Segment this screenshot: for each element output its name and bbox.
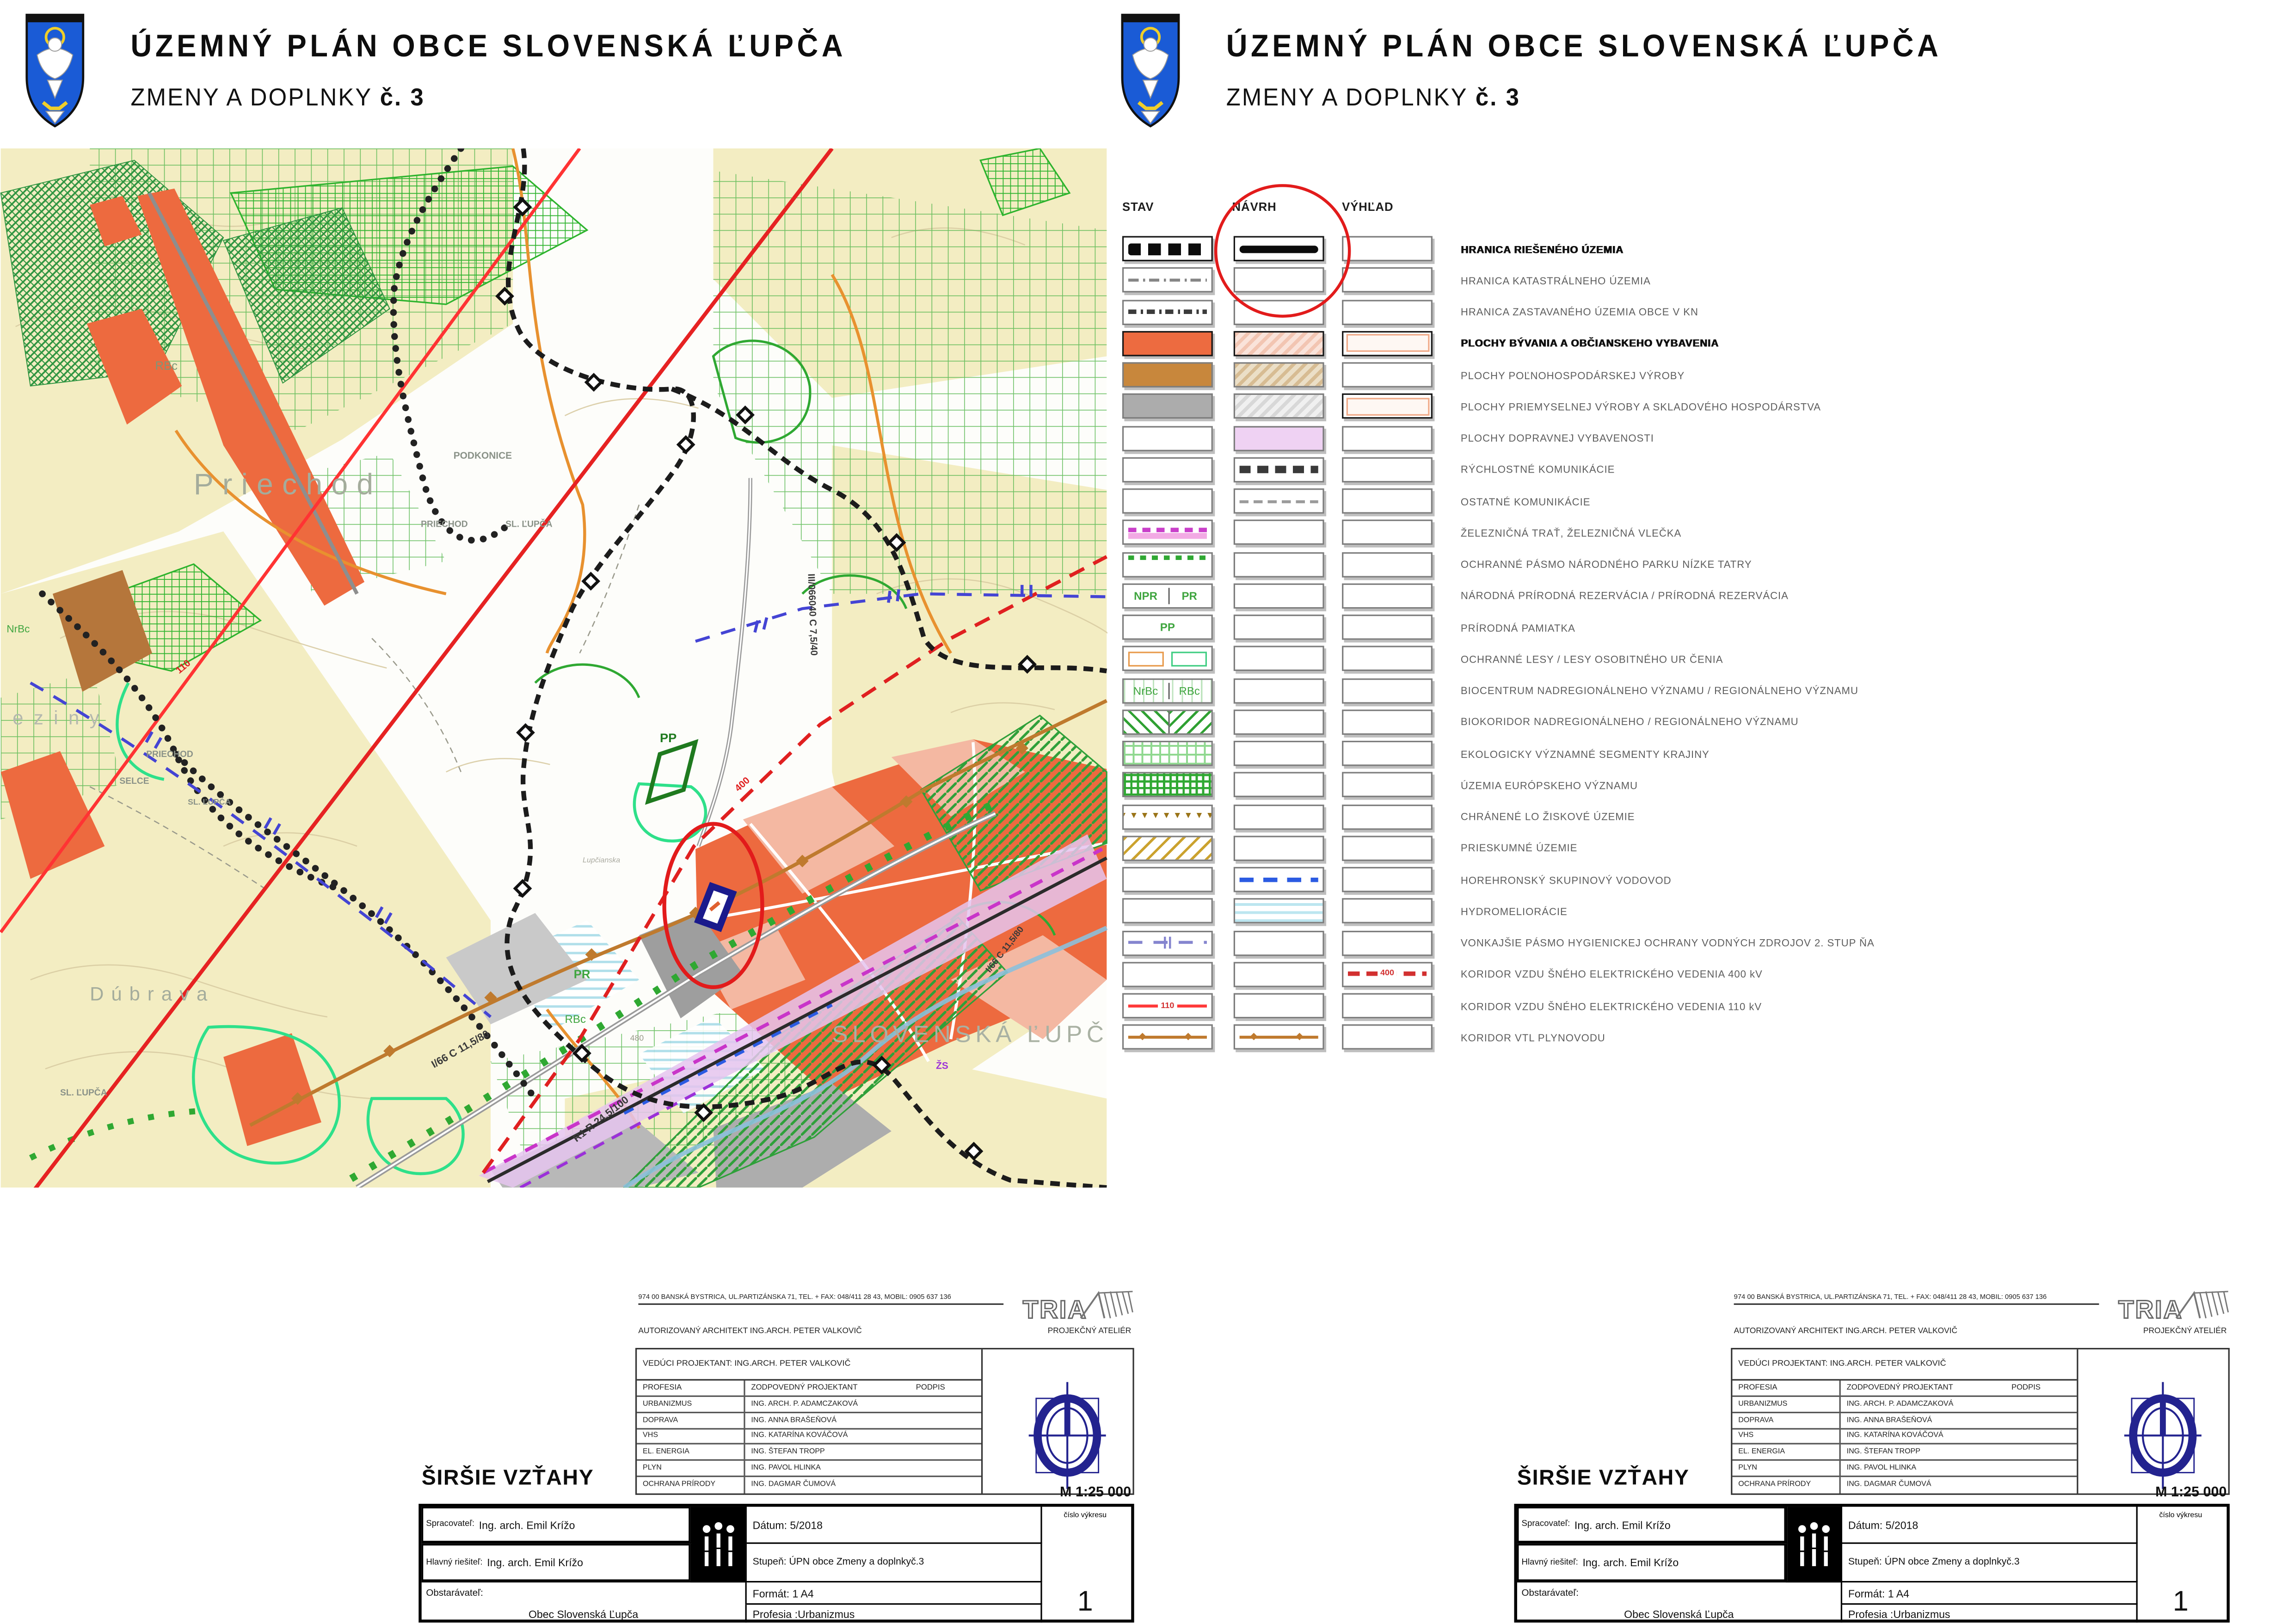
drawing-number-label: číslo výkresu — [2138, 1507, 2224, 1582]
legend-swatch-vyhlad — [1342, 425, 1433, 451]
legend-swatch-vyhlad — [1342, 268, 1433, 293]
legend-swatch-stav: PP — [1122, 615, 1213, 640]
legend-swatch-stav: ◆ ◆ — [1122, 1025, 1213, 1050]
legend-swatch-stav — [1122, 299, 1213, 325]
legend-swatch-vyhlad — [1342, 867, 1433, 892]
legend-row: 400KORIDOR VZDU ŠNÉHO ELEKTRICKÉHO VEDEN… — [1122, 960, 2294, 991]
legend-label: ŽELEZNIČNÁ TRAŤ, ŽELEZNIČNÁ VLEČKA — [1461, 529, 1681, 539]
info-table: Spracovateľ:Ing. arch. Emil Krížo Dátum:… — [418, 1504, 1134, 1623]
studio-address: 974 00 BANSKÁ BYSTRICA, UL.PARTIZÁNSKA 7… — [638, 1293, 1003, 1305]
svg-text:480: 480 — [630, 1033, 644, 1042]
legend-label: VONKAJŠIE PÁSMO HYGIENICKEJ OCHRANY VODN… — [1461, 939, 1875, 949]
legend-swatch-stav — [1122, 520, 1213, 545]
map-scale: M 1:25 000 — [1060, 1484, 1131, 1501]
legend-label: HOREHRONSKÝ SKUPINOVÝ VODOVOD — [1461, 876, 1672, 886]
legend-swatch-navrh — [1234, 552, 1324, 577]
legend-row: PLOCHY PRIEMYSELNEJ VÝROBY A SKLADOVÉHO … — [1122, 392, 2294, 424]
obec-cell: Obec Slovenská Ľupča — [1517, 1605, 1842, 1623]
legend-swatch-navrh — [1234, 362, 1324, 388]
legend-column-header: VÝHĽAD — [1342, 200, 1393, 214]
svg-text:ŽS: ŽS — [936, 1060, 948, 1071]
legend-label: HYDROMELIORÁCIE — [1461, 908, 1568, 918]
svg-text:SL. ĽUPČA: SL. ĽUPČA — [60, 1088, 107, 1098]
legend-label: OCHRANNÉ PÁSMO NÁRODNÉHO PARKU NÍZKE TAT… — [1461, 560, 1752, 571]
profesia-cell: Profesia :Urbanizmus — [747, 1605, 1042, 1623]
legend-row: 110KORIDOR VZDU ŠNÉHO ELEKTRICKÉHO VEDEN… — [1122, 991, 2294, 1023]
people-icon — [692, 1507, 747, 1582]
legend-swatch-vyhlad — [1342, 299, 1433, 325]
legend-row: PLOCHY DOPRAVNEJ VYBAVENOSTI — [1122, 424, 2294, 455]
legend-row: BIOKORIDOR NADREGIONÁLNEHO / REGIONÁLNEH… — [1122, 708, 2294, 739]
legend-swatch-stav — [1122, 646, 1213, 671]
legend-row: PLOCHY POĽNOHOSPODÁRSKEJ VÝROBY — [1122, 361, 2294, 392]
svg-text:Priechod: Priechod — [194, 468, 382, 501]
plan-sheet: ÚZEMNÝ PLÁN OBCE SLOVENSKÁ ĽUPČA ZMENY A… — [0, 0, 2294, 1623]
legend-label: HRANICA ZASTAVANÉHO ÚZEMIA OBCE V KN — [1461, 308, 1698, 318]
profession-row: VHSING. KATARÍNA KOVÁČOVÁ — [637, 1429, 981, 1445]
title-block-left: 974 00 BANSKÁ BYSTRICA, UL.PARTIZÁNSKA 7… — [418, 1289, 1134, 1624]
profession-row: PLYNING. PAVOL HLINKA — [637, 1461, 981, 1477]
drawing-number-label: číslo výkresu — [1042, 1507, 1128, 1582]
legend-label: BIOCENTRUM NADREGIONÁLNEHO VÝZNAMU / REG… — [1461, 687, 1858, 697]
legend-swatch-stav — [1122, 236, 1213, 261]
professions-header: PROFESIA ZODPOVEDNÝ PROJEKTANT PODPIS — [1732, 1381, 2077, 1397]
legend-row: ŽELEZNIČNÁ TRAŤ, ŽELEZNIČNÁ VLEČKA — [1122, 518, 2294, 550]
legend-row: OCHRANNÉ LESY / LESY OSOBITNÉHO UR ČENIA — [1122, 645, 2294, 676]
profession-row: DOPRAVAING. ANNA BRAŠEŇOVÁ — [637, 1413, 981, 1429]
legend-swatch-navrh — [1234, 583, 1324, 609]
legend-swatch-navrh — [1234, 804, 1324, 829]
legend-swatch-stav — [1122, 488, 1213, 514]
legend-label: PLOCHY PRIEMYSELNEJ VÝROBY A SKLADOVÉHO … — [1461, 403, 1821, 413]
atelier-label: PROJEKČNÝ ATELIÉR — [1048, 1327, 1131, 1336]
legend-swatch-stav — [1122, 394, 1213, 419]
header-left — [25, 13, 85, 136]
legend-label: KORIDOR VZDU ŠNÉHO ELEKTRICKÉHO VEDENIA … — [1461, 971, 1763, 981]
drawing-title: ŠIRŠIE VZŤAHY — [422, 1467, 594, 1490]
legend: STAVNÁVRHVÝHĽADHRANICA RIEŠENÉHO ÚZEMIAH… — [1122, 200, 2294, 1058]
legend-row: VONKAJŠIE PÁSMO HYGIENICKEJ OCHRANY VODN… — [1122, 929, 2294, 960]
north-compass-icon — [1021, 1381, 1113, 1498]
legend-swatch-stav — [1122, 425, 1213, 451]
legend-swatch-stav — [1122, 457, 1213, 482]
legend-swatch-vyhlad — [1342, 709, 1433, 735]
legend-label: HRANICA RIEŠENÉHO ÚZEMIA — [1461, 245, 1624, 255]
legend-label: BIOKORIDOR NADREGIONÁLNEHO / REGIONÁLNEH… — [1461, 718, 1799, 728]
drawing-number: 1 — [2138, 1582, 2224, 1623]
studio-address: 974 00 BANSKÁ BYSTRICA, UL.PARTIZÁNSKA 7… — [1734, 1293, 2099, 1305]
legend-label: PRÍRODNÁ PAMIATKA — [1461, 624, 1575, 634]
spracovatel-cell: Spracovateľ:Ing. arch. Emil Krížo — [422, 1507, 692, 1544]
legend-swatch-vyhlad — [1342, 583, 1433, 609]
coat-of-arms-icon — [25, 13, 85, 129]
legend-row: HYDROMELIORÁCIE — [1122, 897, 2294, 929]
obstaravatel-cell: Obstarávateľ: — [1517, 1582, 1842, 1605]
legend-swatch-vyhlad — [1342, 331, 1433, 356]
legend-swatch-vyhlad — [1342, 836, 1433, 861]
legend-swatch-navrh — [1234, 488, 1324, 514]
red-ellipse-annotation — [1214, 184, 1351, 318]
atelier-label: PROJEKČNÝ ATELIÉR — [2143, 1327, 2226, 1336]
legend-column-header: STAV — [1122, 200, 1154, 214]
svg-text:Dúbrava: Dúbrava — [90, 983, 215, 1005]
legend-swatch-vyhlad — [1342, 236, 1433, 261]
page-subtitle: ZMENY A DOPLNKY č. 3 — [131, 85, 425, 113]
svg-text:Lupčianska: Lupčianska — [583, 856, 620, 864]
format-cell: Formát: 1 A4 — [1842, 1582, 2138, 1605]
legend-swatch-navrh: ◆ ◆ — [1234, 1025, 1324, 1050]
architect-line: AUTORIZOVANÝ ARCHITEKT ING.ARCH. PETER V… — [1734, 1327, 1957, 1336]
legend-swatch-navrh — [1234, 772, 1324, 798]
tria-logo-icon: TRIA — [2117, 1289, 2230, 1332]
tria-logo-icon: TRIA — [1021, 1289, 1134, 1332]
legend-swatch-vyhlad — [1342, 457, 1433, 482]
legend-label: KORIDOR VTL PLYNOVODU — [1461, 1033, 1605, 1044]
legend-swatch-navrh — [1234, 961, 1324, 987]
legend-swatch-vyhlad — [1342, 804, 1433, 829]
profession-row: PLYNING. PAVOL HLINKA — [1732, 1461, 2077, 1477]
spracovatel-cell: Spracovateľ:Ing. arch. Emil Krížo — [1517, 1507, 1787, 1544]
drawing-title: ŠIRŠIE VZŤAHY — [1517, 1467, 1690, 1490]
svg-text:SL. ĽUPČA: SL. ĽUPČA — [188, 797, 231, 806]
legend-label: PLOCHY POĽNOHOSPODÁRSKEJ VÝROBY — [1461, 371, 1685, 381]
profession-row: VHSING. KATARÍNA KOVÁČOVÁ — [1732, 1429, 2077, 1445]
legend-swatch-navrh — [1234, 457, 1324, 482]
legend-swatch-vyhlad — [1342, 394, 1433, 419]
stupen-cell: Stupeň: ÚPN obce Zmeny a doplnkyč.3 — [1842, 1544, 2138, 1582]
format-cell: Formát: 1 A4 — [747, 1582, 1042, 1605]
legend-swatch-stav — [1122, 331, 1213, 356]
legend-swatch-stav: 110 — [1122, 993, 1213, 1019]
legend-swatch-navrh — [1234, 867, 1324, 892]
header-right — [1121, 13, 1180, 136]
svg-text:NrBc: NrBc — [6, 623, 30, 635]
legend-swatch-vyhlad: 400 — [1342, 961, 1433, 987]
profession-row: URBANIZMUSING. ARCH. P. ADAMCZAKOVÁ — [637, 1397, 981, 1413]
legend-row: PPPRÍRODNÁ PAMIATKA — [1122, 613, 2294, 645]
legend-row: RÝCHLOSTNÉ KOMUNIKÁCIE — [1122, 455, 2294, 487]
svg-text:SLOVENSKÁ ĽUPČA: SLOVENSKÁ ĽUPČA — [832, 1021, 1107, 1047]
drawing-number: 1 — [1042, 1582, 1128, 1623]
legend-swatch-vyhlad — [1342, 678, 1433, 703]
legend-swatch-navrh — [1234, 836, 1324, 861]
svg-text:PRIECHOD: PRIECHOD — [146, 750, 193, 759]
datum-cell: Dátum: 5/2018 — [747, 1507, 1042, 1544]
legend-swatch-vyhlad — [1342, 1025, 1433, 1050]
legend-swatch-navrh — [1234, 898, 1324, 924]
profession-row: OCHRANA PRÍRODYING. DAGMAR ČUMOVÁ — [637, 1477, 981, 1493]
stupen-cell: Stupeň: ÚPN obce Zmeny a doplnkyč.3 — [747, 1544, 1042, 1582]
svg-text:PR: PR — [574, 968, 590, 981]
legend-swatch-stav — [1122, 867, 1213, 892]
map-scale: M 1:25 000 — [2155, 1484, 2226, 1501]
legend-label: PRIESKUMNÉ ÚZEMIE — [1461, 844, 1577, 855]
legend-row: NPRPRNÁRODNÁ PRÍRODNÁ REZERVÁCIA / PRÍRO… — [1122, 582, 2294, 613]
legend-row: ◆ ◆◆ ◆KORIDOR VTL PLYNOVODU — [1122, 1023, 2294, 1055]
legend-swatch-stav — [1122, 961, 1213, 987]
legend-swatch-navrh — [1234, 741, 1324, 766]
legend-swatch-vyhlad — [1342, 898, 1433, 924]
legend-swatch-stav — [1122, 898, 1213, 924]
svg-text:TRIA: TRIA — [1023, 1296, 1088, 1324]
svg-text:TRIA: TRIA — [2118, 1296, 2183, 1324]
legend-swatch-navrh — [1234, 615, 1324, 640]
legend-swatch-vyhlad — [1342, 362, 1433, 388]
svg-text:PODKONICE: PODKONICE — [454, 450, 512, 461]
legend-swatch-stav: NrBcRBc — [1122, 678, 1213, 703]
legend-row: PRIESKUMNÉ ÚZEMIE — [1122, 834, 2294, 865]
lead-designer: VEDÚCI PROJEKTANT: ING.ARCH. PETER VALKO… — [1732, 1349, 2077, 1380]
coat-of-arms-icon — [1121, 13, 1180, 129]
legend-swatch-vyhlad — [1342, 520, 1433, 545]
legend-swatch-navrh — [1234, 993, 1324, 1019]
svg-text:RBc: RBc — [155, 359, 178, 372]
legend-swatch-stav: NPRPR — [1122, 583, 1213, 609]
legend-swatch-vyhlad — [1342, 930, 1433, 955]
legend-swatch-vyhlad — [1342, 741, 1433, 766]
info-table: Spracovateľ:Ing. arch. Emil Krížo Dátum:… — [1514, 1504, 2230, 1623]
legend-label: ÚZEMIA EURÓPSKEHO VÝZNAMU — [1461, 781, 1638, 792]
legend-row: OSTATNÉ KOMUNIKÁCIE — [1122, 487, 2294, 518]
legend-swatch-stav — [1122, 772, 1213, 798]
professions-header: PROFESIA ZODPOVEDNÝ PROJEKTANT PODPIS — [637, 1381, 981, 1397]
legend-row: EKOLOGICKY VÝZNAMNÉ SEGMENTY KRAJINY — [1122, 739, 2294, 771]
legend-row: ÚZEMIA EURÓPSKEHO VÝZNAMU — [1122, 771, 2294, 802]
legend-swatch-vyhlad — [1342, 615, 1433, 640]
obec-cell: Obec Slovenská Ľupča — [422, 1605, 747, 1623]
page-subtitle-copy: ZMENY A DOPLNKY č. 3 — [1226, 85, 1520, 113]
page-title: ÚZEMNÝ PLÁN OBCE SLOVENSKÁ ĽUPČA — [131, 30, 847, 65]
svg-text:PRIECHOD: PRIECHOD — [421, 520, 468, 529]
legend-swatch-navrh — [1234, 520, 1324, 545]
architect-line: AUTORIZOVANÝ ARCHITEKT ING.ARCH. PETER V… — [638, 1327, 861, 1336]
hlavny-cell: Hlavný riešiteľ:Ing. arch. Emil Krížo — [1517, 1544, 1787, 1582]
svg-text:eziny: eziny — [12, 707, 110, 729]
profesia-cell: Profesia :Urbanizmus — [1842, 1605, 2138, 1623]
profession-row: EL. ENERGIAING. ŠTEFAN TROPP — [1732, 1445, 2077, 1461]
hlavny-cell: Hlavný riešiteľ:Ing. arch. Emil Krížo — [422, 1544, 692, 1582]
legend-swatch-vyhlad — [1342, 772, 1433, 798]
legend-swatch-stav — [1122, 741, 1213, 766]
legend-label: KORIDOR VZDU ŠNÉHO ELEKTRICKÉHO VEDENIA … — [1461, 1002, 1762, 1012]
north-compass-icon — [2117, 1381, 2209, 1498]
profession-row: OCHRANA PRÍRODYING. DAGMAR ČUMOVÁ — [1732, 1477, 2077, 1493]
legend-swatch-stav — [1122, 268, 1213, 293]
svg-text:SELCE: SELCE — [119, 776, 149, 786]
legend-swatch-stav — [1122, 836, 1213, 861]
legend-swatch-navrh — [1234, 930, 1324, 955]
svg-text:RBc: RBc — [565, 1013, 586, 1026]
legend-swatch-stav: ▼▼▼▼▼▼▼▼▼ — [1122, 804, 1213, 829]
legend-swatch-stav — [1122, 552, 1213, 577]
legend-row: NrBcRBcBIOCENTRUM NADREGIONÁLNEHO VÝZNAM… — [1122, 676, 2294, 707]
page-title-copy: ÚZEMNÝ PLÁN OBCE SLOVENSKÁ ĽUPČA — [1226, 30, 1942, 65]
legend-swatch-vyhlad — [1342, 646, 1433, 671]
legend-swatch-vyhlad — [1342, 552, 1433, 577]
legend-swatch-navrh — [1234, 678, 1324, 703]
legend-label: RÝCHLOSTNÉ KOMUNIKÁCIE — [1461, 466, 1615, 476]
legend-swatch-vyhlad — [1342, 993, 1433, 1019]
legend-swatch-navrh — [1234, 709, 1324, 735]
legend-label: PLOCHY DOPRAVNEJ VYBAVENOSTI — [1461, 434, 1654, 444]
legend-swatch-vyhlad — [1342, 488, 1433, 514]
people-icon — [1787, 1507, 1842, 1582]
obstaravatel-cell: Obstarávateľ: — [422, 1582, 747, 1605]
datum-cell: Dátum: 5/2018 — [1842, 1507, 2138, 1544]
legend-row: OCHRANNÉ PÁSMO NÁRODNÉHO PARKU NÍZKE TAT… — [1122, 550, 2294, 581]
legend-swatch-navrh — [1234, 331, 1324, 356]
legend-label: PLOCHY BÝVANIA A OBČIANSKEHO VYBAVENIA — [1461, 340, 1719, 350]
legend-label: HRANICA KATASTRÁLNEHO ÚZEMIA — [1461, 277, 1651, 287]
legend-label: OCHRANNÉ LESY / LESY OSOBITNÉHO UR ČENIA — [1461, 655, 1723, 665]
legend-label: OSTATNÉ KOMUNIKÁCIE — [1461, 498, 1591, 508]
legend-swatch-navrh — [1234, 425, 1324, 451]
legend-swatch-stav — [1122, 362, 1213, 388]
zoning-map: Priechod Dúbrava SLOVENSKÁ ĽUPČA PODKONI… — [0, 148, 1107, 1187]
profession-row: DOPRAVAING. ANNA BRAŠEŇOVÁ — [1732, 1413, 2077, 1429]
svg-text:PP: PP — [660, 731, 677, 745]
legend-swatch-stav — [1122, 930, 1213, 955]
legend-label: NÁRODNÁ PRÍRODNÁ REZERVÁCIA / PRÍRODNÁ R… — [1461, 592, 1789, 602]
svg-text:SL. ĽUPČA: SL. ĽUPČA — [505, 519, 553, 529]
legend-label: EKOLOGICKY VÝZNAMNÉ SEGMENTY KRAJINY — [1461, 750, 1710, 760]
legend-swatch-navrh — [1234, 394, 1324, 419]
title-block-right: 974 00 BANSKÁ BYSTRICA, UL.PARTIZÁNSKA 7… — [1514, 1289, 2230, 1624]
legend-swatch-stav — [1122, 709, 1213, 735]
legend-row: PLOCHY BÝVANIA A OBČIANSKEHO VYBAVENIA — [1122, 329, 2294, 361]
legend-label: CHRÁNENÉ LO ŽISKOVÉ ÚZEMIE — [1461, 813, 1635, 823]
profession-row: EL. ENERGIAING. ŠTEFAN TROPP — [637, 1445, 981, 1461]
legend-row: HOREHRONSKÝ SKUPINOVÝ VODOVOD — [1122, 866, 2294, 897]
profession-row: URBANIZMUSING. ARCH. P. ADAMCZAKOVÁ — [1732, 1397, 2077, 1413]
legend-row: ▼▼▼▼▼▼▼▼▼CHRÁNENÉ LO ŽISKOVÉ ÚZEMIE — [1122, 802, 2294, 834]
lead-designer: VEDÚCI PROJEKTANT: ING.ARCH. PETER VALKO… — [637, 1349, 981, 1380]
legend-swatch-navrh — [1234, 646, 1324, 671]
